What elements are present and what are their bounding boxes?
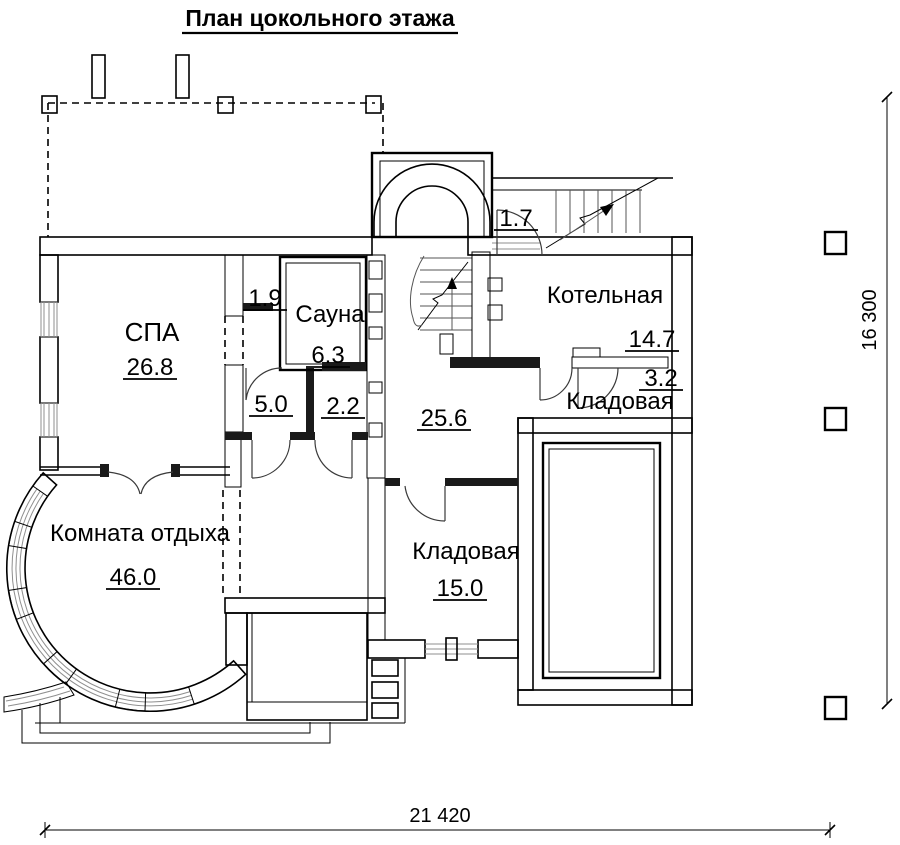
stair-up-arrow (447, 277, 457, 289)
floor-plan-page: План цокольного этажа (0, 0, 900, 845)
french-door (108, 472, 173, 494)
dimension-bottom: 21 420 (40, 805, 835, 838)
room-area-hall: 25.6 (421, 405, 468, 432)
terrace-outline (42, 55, 383, 237)
exterior-steps (4, 613, 405, 743)
entrance-vestibule (372, 153, 542, 255)
room-area-closet: 1.9 (248, 285, 281, 312)
spa-lounge-wall (40, 464, 230, 494)
floor-plan-svg: План цокольного этажа (0, 0, 900, 845)
room-area-spa: 26.8 (127, 354, 174, 381)
shower-door (252, 440, 290, 478)
overall-height-dimension: 16 300 (859, 289, 881, 350)
ramp (4, 682, 74, 712)
terrace-post (366, 96, 381, 113)
pantry-window (425, 638, 478, 660)
column-marker (825, 408, 846, 430)
spa-window (41, 302, 57, 437)
chimney (92, 55, 105, 98)
column-marker (825, 697, 846, 719)
room-area-lounge: 46.0 (110, 564, 157, 591)
room-area-wc: 2.2 (326, 393, 359, 420)
arch-wall (374, 164, 490, 237)
room-area-shower: 5.0 (254, 391, 287, 418)
room-label-boiler: Котельная (547, 282, 663, 309)
doors (246, 368, 618, 521)
overall-width-dimension: 21 420 (409, 805, 470, 827)
pantry-door (405, 486, 445, 521)
interior-stair (410, 256, 472, 330)
bay-window-wall (7, 473, 246, 711)
terrace-post (218, 97, 233, 113)
room-label-spa: СПА (125, 317, 180, 347)
room-area-boiler: 14.7 (629, 326, 676, 353)
chimney (176, 55, 189, 98)
pit-room (543, 443, 660, 678)
side-steps (372, 660, 398, 718)
terrace (247, 613, 367, 720)
terrace-post (42, 96, 57, 113)
room-label-pantry: Кладовая (412, 538, 520, 565)
wc-door (315, 440, 352, 478)
column-marker (825, 232, 846, 254)
page-title: План цокольного этажа (185, 5, 455, 31)
room-label-sauna: Сауна (295, 301, 365, 328)
room-area-sauna: 6.3 (311, 342, 344, 369)
entry-width-label: 1.7 (499, 205, 532, 232)
room-label-lounge: Комната отдыха (50, 520, 231, 547)
drawing-title: План цокольного этажа (182, 5, 458, 33)
room-area-pantry: 15.0 (437, 575, 484, 602)
dimension-right: 16 300 (825, 92, 892, 719)
room-label-pantry-small: Кладовая (566, 388, 674, 415)
vent-shafts (369, 261, 382, 437)
